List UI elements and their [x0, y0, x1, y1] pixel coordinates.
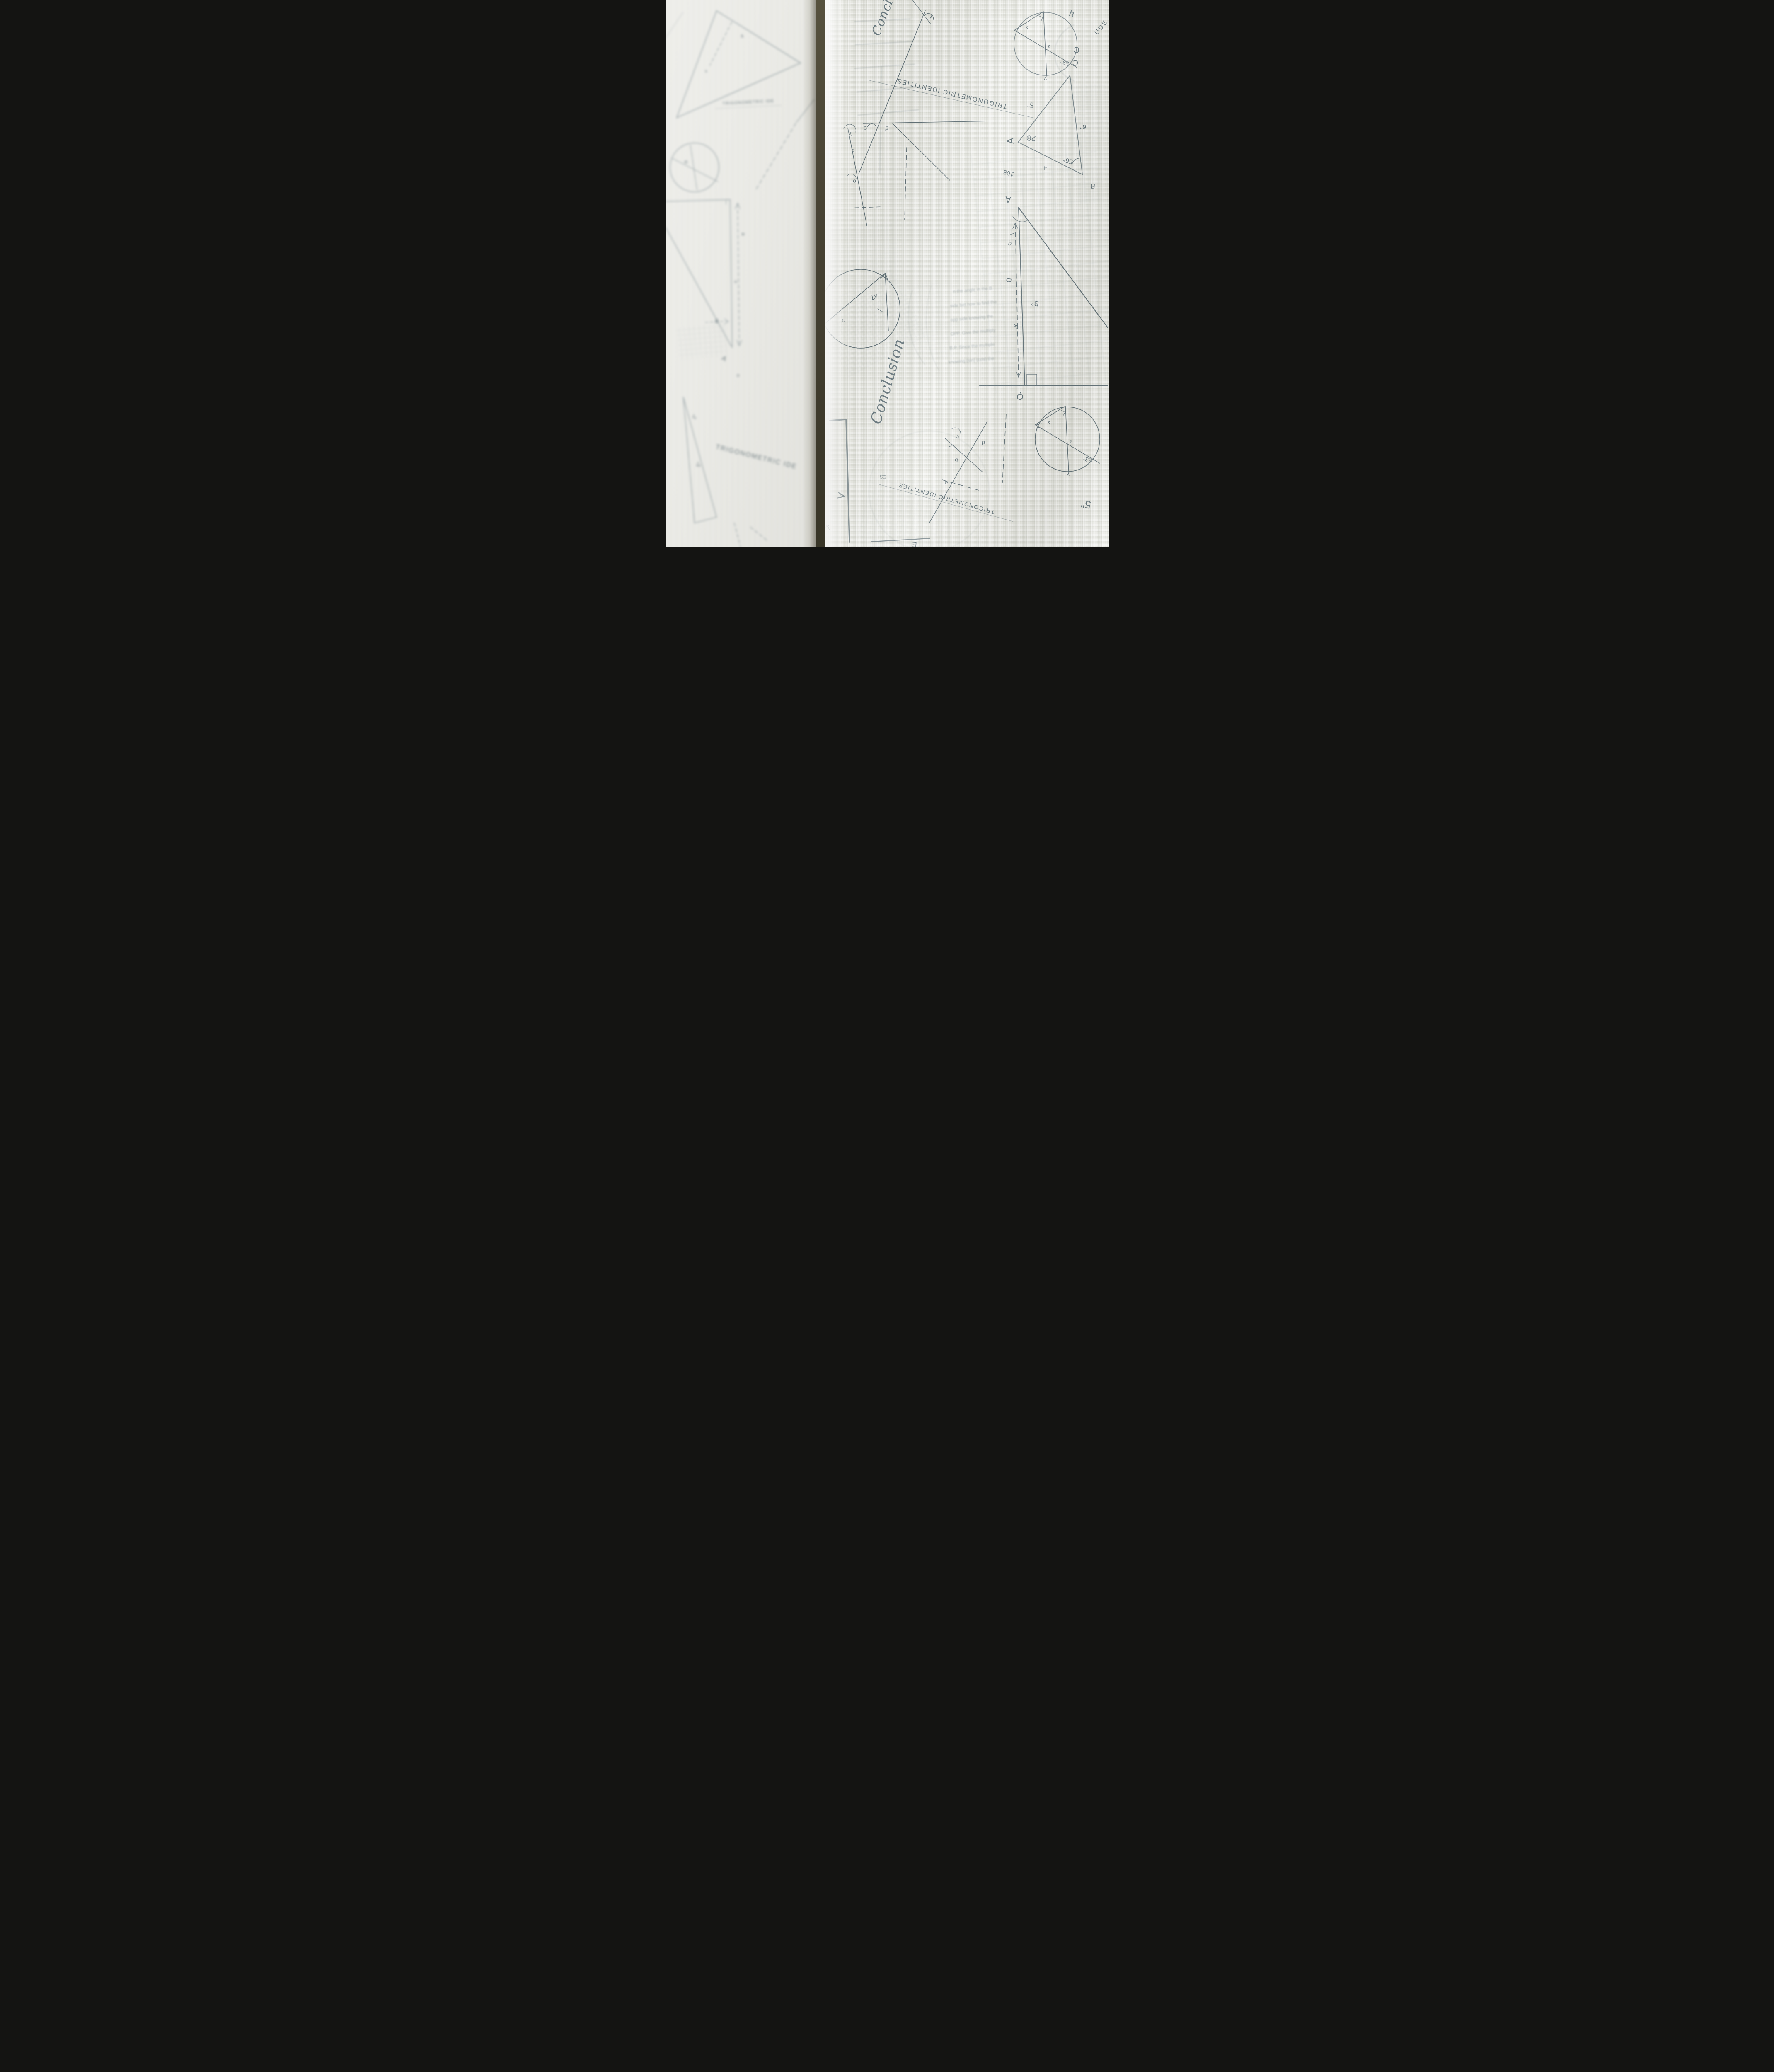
label-c: c: [864, 125, 867, 132]
label-x: x: [1025, 24, 1029, 31]
label-ude-partial: UDE: [1094, 18, 1109, 36]
label-c: c: [956, 434, 959, 441]
ray: [945, 438, 982, 472]
right-angle-tick: [1061, 410, 1065, 416]
label-h: h: [1068, 8, 1075, 19]
label-53deg: 53°: [1060, 58, 1070, 67]
label-28: 28: [1027, 133, 1036, 143]
diagonal-chord: [825, 274, 885, 334]
right-angle-tick: [1038, 16, 1043, 22]
label-r: R: [684, 160, 688, 165]
left-dashed-diagonal: [756, 99, 814, 189]
label-b: B: [1004, 277, 1013, 283]
label-53deg: 53°: [1082, 455, 1092, 464]
dashed-measure-arrow: [1015, 224, 1019, 376]
label-b: B: [1090, 182, 1096, 191]
label-b: b: [955, 457, 958, 464]
label-ies-partial: ES: [880, 474, 887, 480]
fabric-left-weave: 4 x TRIGONOMETRIC IDE R: [666, 0, 816, 547]
diagonal-d: [893, 123, 950, 180]
circle-diagram-47: 47 z: [825, 269, 900, 348]
label-5in: 5": [1027, 101, 1034, 109]
label-a-corner: A: [835, 491, 847, 500]
dashed-line: [756, 122, 796, 189]
left-print-art: 4 x TRIGONOMETRIC IDE R: [666, 0, 816, 547]
dashed-line: [750, 527, 767, 541]
circle-diagram-bottom-right: x z 53° y 5" ES: [880, 406, 1100, 511]
dashed-vertical: [905, 148, 907, 220]
chord: [690, 145, 697, 190]
vertical-side: [1019, 208, 1025, 385]
angle-arc: [844, 124, 856, 132]
label-z: z: [1047, 44, 1050, 50]
dashed-horizontal: [848, 207, 882, 208]
label-z: z: [1069, 439, 1072, 445]
printed-baseline: [872, 538, 930, 542]
label-z: z: [840, 318, 846, 324]
diagonal-line: [859, 10, 925, 174]
underline: [879, 483, 1013, 523]
left-trig-text-small: TRIGONOMETRIC IDE: [715, 99, 782, 109]
left-circle-diagram: R: [670, 143, 719, 192]
trig-identities-text: TRIGONOMETRIC IDE: [722, 99, 774, 106]
corner-bracket: [830, 419, 849, 542]
angle-arc: [867, 124, 876, 129]
tick: [1010, 233, 1015, 235]
label-o: o: [853, 178, 857, 185]
label-b: B: [714, 317, 719, 324]
label-a-low: a: [740, 233, 746, 236]
left-thin-triangle: 2" 5°: [683, 397, 716, 523]
line: [683, 397, 716, 517]
big-right-triangle: A q B x' B° Q: [980, 194, 1108, 402]
dashed-line: [734, 523, 741, 547]
label-y: y: [1067, 472, 1070, 478]
label-c: C: [1072, 58, 1079, 67]
label-e: E: [912, 540, 917, 547]
label-2in: 2": [691, 414, 698, 420]
trig-identities-text: TRIGONOMETRIC IDE: [715, 443, 797, 470]
label-b-deg: B°: [1031, 299, 1040, 308]
label-y: y: [1044, 75, 1047, 82]
diameter-chord: [1043, 12, 1047, 76]
partial-ray: [912, 0, 931, 24]
label-q: Q: [1015, 391, 1025, 402]
label-a: A: [1005, 137, 1016, 144]
fabric-right-weave: n the angle in the B side bet how to fin…: [825, 0, 1108, 547]
label-d: d: [982, 440, 985, 447]
angle-arc: [847, 174, 856, 179]
label-56deg: 56°: [1062, 156, 1074, 165]
fabric-photo: 4 x TRIGONOMETRIC IDE R: [666, 0, 1109, 547]
label-o: o: [734, 279, 736, 284]
right-angle-square: [1027, 374, 1037, 385]
line: [695, 517, 716, 523]
dashed-vertical: [1002, 414, 1006, 483]
trig-identities-text: TRIGONOMETRIC IDENTITIES: [896, 77, 1008, 110]
label-b: b: [852, 148, 855, 154]
angle-arc: [952, 428, 961, 433]
dashed-measure-arrow: [738, 204, 739, 345]
chord: [1014, 12, 1043, 30]
label-x-prime: x': [1012, 324, 1020, 329]
line: [796, 99, 814, 122]
circle: [825, 269, 900, 348]
triangle-28-56: C A 5" 28 56° 6" B 108: [1003, 58, 1096, 191]
grid-patch: [675, 324, 727, 360]
label-5in: 5": [1080, 497, 1092, 511]
label-x: x: [1047, 419, 1050, 426]
conclusion-partial-top: Conclu: [869, 0, 899, 38]
line-cd: [863, 121, 991, 123]
dashed-line: [710, 22, 732, 65]
label-x-deg: x°: [825, 524, 831, 531]
right-print-sharp-layer: x z 53° y C A 5" 28 56° 6" B 108: [825, 0, 1108, 547]
label-4: 4: [739, 33, 744, 39]
fabric-panel-right: n the angle in the B side bet how to fin…: [825, 0, 1108, 547]
trig-identities-top: TRIGONOMETRIC IDENTITIES: [870, 71, 1036, 119]
trig-identities-text: TRIGONOMETRIC IDENTITIES: [898, 482, 995, 516]
label-6in: 6": [1080, 123, 1087, 130]
underline: [870, 79, 1033, 119]
conclusion-text: Conclusion: [868, 337, 908, 426]
label-x: x: [704, 68, 708, 74]
circle-diagram-top-right: x z 53° y: [1014, 12, 1077, 82]
label-q-small: q: [1008, 240, 1012, 247]
fabric-panel-left: 4 x TRIGONOMETRIC IDE R: [666, 0, 816, 547]
label-108: 108: [1003, 168, 1015, 178]
chord: [672, 158, 718, 182]
left-big-triangle-diagram: a o B A o: [666, 200, 746, 378]
line-bo: [848, 128, 867, 226]
left-trig-text-bottom: TRIGONOMETRIC IDE: [715, 443, 797, 470]
label-4: 4: [1043, 165, 1047, 172]
vertical-side: [730, 200, 732, 348]
circle: [670, 143, 719, 192]
label-o2: o: [736, 373, 739, 378]
diameter-chord: [1065, 406, 1069, 472]
stray-letters: h C UDE 4: [1043, 8, 1108, 172]
label-c-big: C: [1073, 45, 1080, 54]
label-a: A: [1005, 194, 1012, 204]
tick: [877, 309, 883, 312]
label-d: d: [885, 125, 889, 132]
hypotenuse: [1019, 208, 1108, 329]
label-y2: y: [930, 15, 933, 21]
label-47: 47: [869, 292, 879, 301]
line: [666, 12, 683, 38]
top-line: [666, 200, 730, 201]
left-bottom-dashes: [666, 12, 767, 547]
transversal-diagram-top: c d b o y y: [844, 0, 991, 226]
chord: [885, 273, 888, 331]
